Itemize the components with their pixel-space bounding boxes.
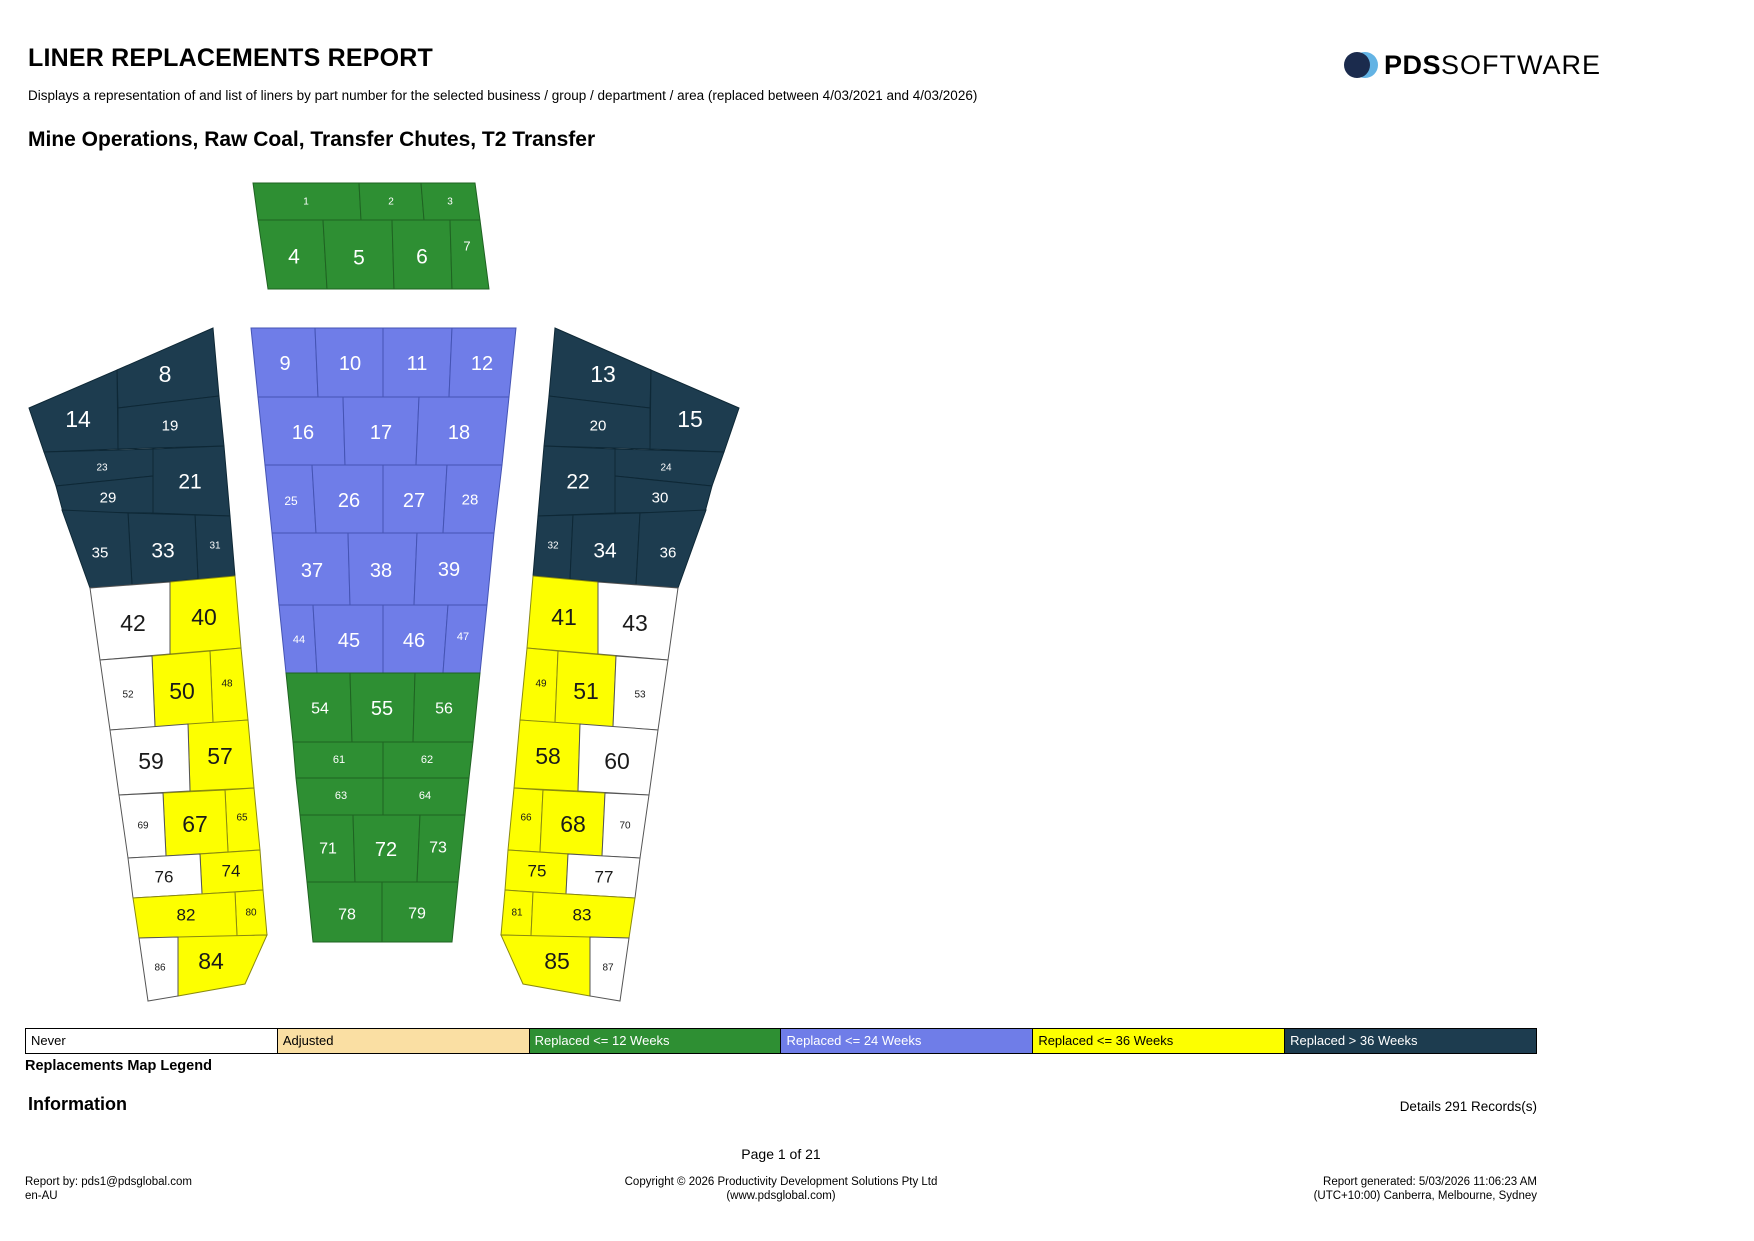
map-cell-label-35: 35 <box>92 545 109 562</box>
map-cell-label-60: 60 <box>604 748 630 774</box>
map-cell-label-47: 47 <box>457 631 469 643</box>
map-cell-label-70: 70 <box>619 821 631 832</box>
legend-bar: NeverAdjustedReplaced <= 12 WeeksReplace… <box>25 1028 1537 1054</box>
map-cell-label-17: 17 <box>370 422 392 444</box>
map-cell-label-75: 75 <box>528 862 547 881</box>
map-cell-label-5: 5 <box>353 247 365 270</box>
map-cell-label-71: 71 <box>319 841 337 858</box>
map-cell-label-52: 52 <box>122 690 134 701</box>
map-cell-label-11: 11 <box>407 353 428 375</box>
map-cell-label-78: 78 <box>338 907 356 924</box>
map-cell-label-48: 48 <box>221 679 233 690</box>
footer-generated: Report generated: 5/03/2026 11:06:23 AM <box>25 1176 1537 1190</box>
map-cell-label-74: 74 <box>222 862 241 881</box>
logo-text-software: SOFTWARE <box>1441 50 1601 81</box>
map-cell-label-69: 69 <box>137 821 149 832</box>
map-cell-label-62: 62 <box>421 754 433 766</box>
legend-item-4: Replaced <= 36 Weeks <box>1032 1028 1285 1054</box>
legend-title: Replacements Map Legend <box>25 1058 212 1074</box>
map-cell-label-82: 82 <box>177 906 196 925</box>
map-cell-label-50: 50 <box>169 678 195 704</box>
map-cell-label-57: 57 <box>207 743 233 769</box>
map-cell-label-37: 37 <box>301 560 323 582</box>
map-cell-label-24: 24 <box>660 463 672 474</box>
logo-text-pds: PDS <box>1384 50 1441 81</box>
map-cell-label-46: 46 <box>403 630 425 652</box>
map-cell-label-81: 81 <box>511 908 523 919</box>
replacements-map: 1234567891011121314151617181920212223242… <box>0 0 780 1010</box>
map-cell-label-73: 73 <box>429 840 447 857</box>
map-cell-label-10: 10 <box>339 353 361 375</box>
map-cell-label-64: 64 <box>419 790 431 802</box>
map-cell-label-83: 83 <box>573 906 592 925</box>
footer-right: Report generated: 5/03/2026 11:06:23 AM … <box>25 1176 1537 1203</box>
map-cell-label-25: 25 <box>284 494 298 508</box>
map-cell-label-53: 53 <box>634 690 646 701</box>
map-cell-label-76: 76 <box>155 868 174 887</box>
legend-item-0: Never <box>25 1028 278 1054</box>
map-cell-label-79: 79 <box>408 906 426 923</box>
map-cell-label-27: 27 <box>403 490 425 512</box>
map-cell-label-4: 4 <box>288 246 300 269</box>
map-cell-label-54: 54 <box>311 701 329 718</box>
pds-logo-icon <box>1344 48 1378 82</box>
map-cell-label-59: 59 <box>138 748 164 774</box>
map-cell-label-68: 68 <box>560 811 586 837</box>
map-cell-label-26: 26 <box>338 490 360 512</box>
map-cell-label-34: 34 <box>593 540 617 563</box>
map-cell-label-18: 18 <box>448 422 470 444</box>
map-cell-label-22: 22 <box>566 471 589 494</box>
details-record-count: Details 291 Records(s) <box>25 1099 1537 1114</box>
map-cell-label-14: 14 <box>65 406 91 432</box>
map-cell-label-87: 87 <box>602 963 614 974</box>
map-cell-label-21: 21 <box>178 471 201 494</box>
map-cell-label-28: 28 <box>462 492 479 509</box>
map-cell-label-43: 43 <box>622 610 648 636</box>
map-cell-label-49: 49 <box>535 679 547 690</box>
map-cell-label-12: 12 <box>471 353 493 375</box>
map-cell-label-13: 13 <box>590 361 616 387</box>
map-cell-label-86: 86 <box>154 963 166 974</box>
map-cell-label-44: 44 <box>293 634 305 646</box>
report-page: { "report": { "title": "LINER REPLACEMEN… <box>0 0 1754 1241</box>
map-cell-label-33: 33 <box>151 540 174 563</box>
legend-item-5: Replaced > 36 Weeks <box>1284 1028 1537 1054</box>
map-cell-label-51: 51 <box>573 678 599 704</box>
map-cell-label-84: 84 <box>198 948 224 974</box>
map-cell-label-38: 38 <box>370 560 392 582</box>
map-cell-label-16: 16 <box>292 422 314 444</box>
map-cell-label-77: 77 <box>595 868 614 887</box>
map-cell-label-67: 67 <box>182 811 208 837</box>
map-cell-label-3: 3 <box>447 197 453 208</box>
legend-item-3: Replaced <= 24 Weeks <box>780 1028 1033 1054</box>
map-cell-label-55: 55 <box>371 698 393 720</box>
footer-timezone: (UTC+10:00) Canberra, Melbourne, Sydney <box>25 1190 1537 1204</box>
map-cell-label-15: 15 <box>677 406 703 432</box>
map-cell-label-20: 20 <box>590 418 607 435</box>
map-cell-label-61: 61 <box>333 754 345 766</box>
map-cell-label-1: 1 <box>303 197 309 208</box>
pds-logo: PDSSOFTWARE <box>1344 48 1601 82</box>
map-cell-label-36: 36 <box>660 545 677 562</box>
map-cell-label-72: 72 <box>375 839 397 861</box>
legend-item-1: Adjusted <box>277 1028 530 1054</box>
page-number: Page 1 of 21 <box>25 1146 1537 1162</box>
map-cell-label-31: 31 <box>209 541 221 552</box>
map-cell-label-65: 65 <box>236 813 248 824</box>
map-cell-label-6: 6 <box>416 246 428 269</box>
map-cell-label-85: 85 <box>544 948 570 974</box>
map-cell-label-58: 58 <box>535 743 561 769</box>
map-cell-label-41: 41 <box>551 604 577 630</box>
legend-item-2: Replaced <= 12 Weeks <box>529 1028 782 1054</box>
map-cell-label-63: 63 <box>335 790 347 802</box>
map-cell-label-30: 30 <box>652 490 669 507</box>
map-cell-label-2: 2 <box>388 197 394 208</box>
map-cell-label-7: 7 <box>463 239 470 254</box>
map-cell-label-66: 66 <box>520 813 532 824</box>
map-cell-label-80: 80 <box>245 908 257 919</box>
map-cell-label-45: 45 <box>338 630 360 652</box>
map-cell-label-19: 19 <box>162 418 179 435</box>
map-cell-label-9: 9 <box>279 353 290 375</box>
map-cell-label-29: 29 <box>100 490 117 507</box>
map-cell-label-40: 40 <box>191 604 217 630</box>
map-cell-label-8: 8 <box>159 361 172 387</box>
map-cell-label-23: 23 <box>96 463 108 474</box>
map-cell-label-32: 32 <box>547 541 559 552</box>
map-cell-7 <box>450 220 489 289</box>
map-cell-label-39: 39 <box>438 559 460 581</box>
map-cell-label-42: 42 <box>120 610 146 636</box>
map-cell-label-56: 56 <box>435 701 453 718</box>
